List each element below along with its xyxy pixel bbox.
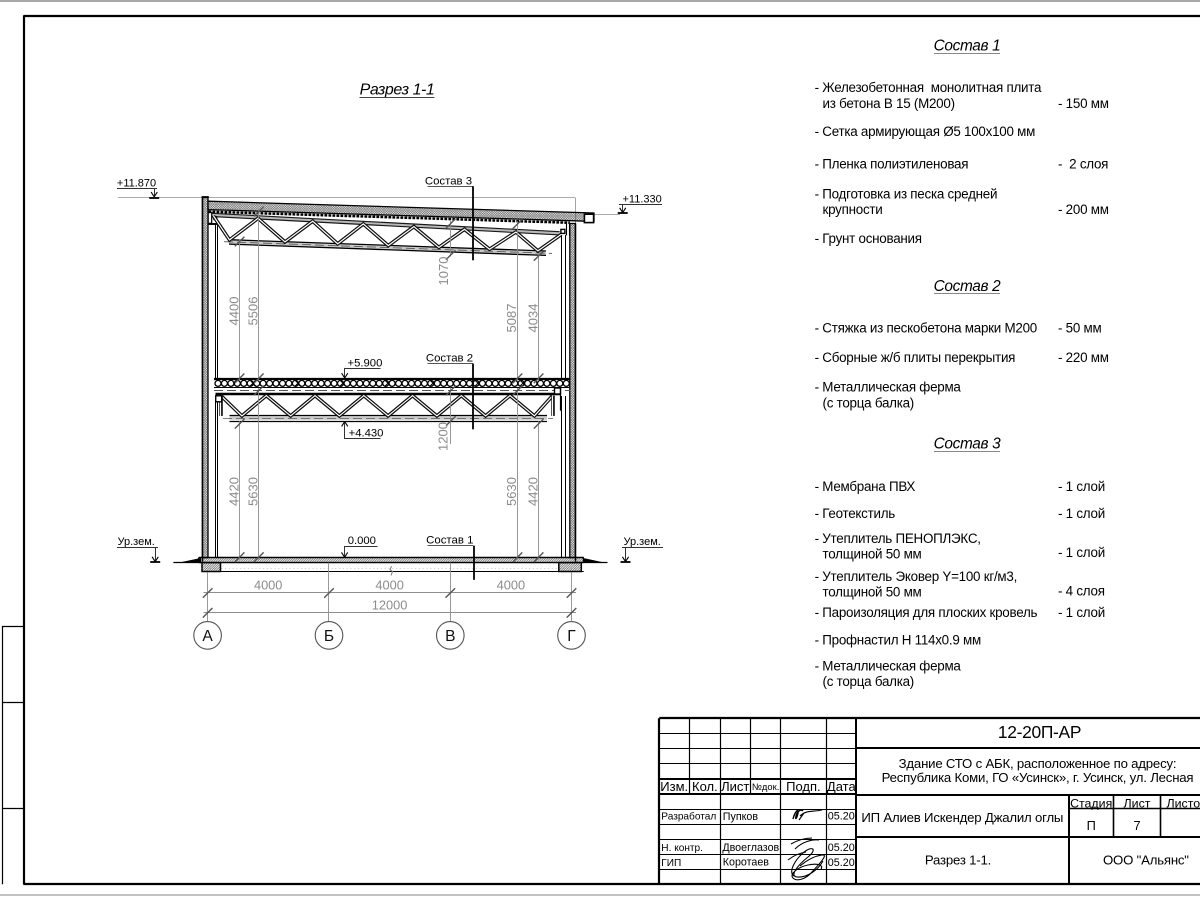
svg-text:- Мембрана ПВХ: - Мембрана ПВХ: [815, 479, 916, 494]
svg-text:Лист: Лист: [1124, 797, 1151, 811]
svg-text:- 1 слой: - 1 слой: [1058, 545, 1105, 560]
svg-text:Состав 2: Состав 2: [934, 278, 1001, 295]
svg-text:Стадия: Стадия: [1070, 797, 1112, 811]
svg-text:Подп.: Подп.: [786, 779, 821, 794]
svg-text:Республика Коми, ГО «Усинск»,: Республика Коми, ГО «Усинск», г. Усинск,…: [882, 770, 1194, 785]
svg-text:5087: 5087: [504, 304, 519, 333]
svg-text:из бетона В 15 (М200): из бетона В 15 (М200): [823, 96, 955, 111]
svg-text:1200: 1200: [436, 422, 451, 451]
svg-text:(с торца балка): (с торца балка): [823, 395, 915, 410]
svg-text:- Подготовка из песка средней: - Подготовка из песка средней: [815, 187, 998, 202]
svg-text:0.000: 0.000: [348, 535, 376, 547]
svg-text:крупности: крупности: [823, 202, 883, 217]
svg-text:- Пароизоляция для плоских кро: - Пароизоляция для плоских кровель: [815, 605, 1038, 620]
svg-text:- 1 слой: - 1 слой: [1058, 506, 1105, 521]
svg-text:Разработал: Разработал: [661, 810, 716, 822]
svg-text:5630: 5630: [504, 477, 519, 506]
svg-text:- Металлическая ферма: - Металлическая ферма: [815, 380, 962, 395]
svg-text:- Металлическая ферма: - Металлическая ферма: [815, 658, 962, 673]
svg-text:05.20: 05.20: [828, 842, 855, 854]
svg-text:5506: 5506: [246, 297, 261, 326]
svg-text:- 200 мм: - 200 мм: [1058, 202, 1109, 217]
svg-text:- 150 мм: - 150 мм: [1058, 96, 1109, 111]
svg-text:- 220 мм: - 220 мм: [1058, 350, 1109, 365]
svg-text:+5.900: +5.900: [348, 357, 383, 369]
svg-text:Разрез 1-1.: Разрез 1-1.: [925, 852, 991, 867]
svg-text:Г: Г: [567, 628, 576, 645]
svg-text:12-20П-АР: 12-20П-АР: [998, 722, 1081, 742]
svg-text:Коротаев: Коротаев: [723, 857, 769, 869]
svg-text:Изм.: Изм.: [660, 779, 688, 794]
svg-text:- Сборные ж/б плиты перекрытия: - Сборные ж/б плиты перекрытия: [815, 350, 1016, 365]
svg-text:толщиной 50 мм: толщиной 50 мм: [823, 585, 922, 600]
svg-text:+4.430: +4.430: [349, 428, 384, 440]
svg-text:7: 7: [1133, 818, 1140, 833]
svg-text:Состав 2: Состав 2: [426, 353, 473, 365]
svg-text:Двоеглазов: Двоеглазов: [722, 842, 779, 854]
svg-text:Листов: Листов: [1167, 797, 1200, 811]
svg-text:Ур.зем.: Ур.зем.: [624, 536, 661, 548]
svg-text:+11.330: +11.330: [623, 194, 662, 206]
svg-text:4400: 4400: [226, 297, 241, 326]
svg-text:- Пленка полиэтиленовая: - Пленка полиэтиленовая: [815, 157, 969, 172]
svg-text:4000: 4000: [375, 578, 403, 593]
svg-text:Состав 1: Состав 1: [426, 535, 473, 547]
svg-text:ИП Алиев Искендер Джалил оглы: ИП Алиев Искендер Джалил оглы: [861, 810, 1063, 825]
svg-text:Разрез 1-1: Разрез 1-1: [360, 82, 435, 99]
svg-text:+11.870: +11.870: [117, 178, 156, 190]
svg-text:А: А: [202, 628, 213, 645]
svg-text:1070: 1070: [436, 257, 451, 286]
svg-text:5630: 5630: [246, 477, 261, 506]
svg-text:- 4 слоя: - 4 слоя: [1058, 583, 1105, 598]
svg-text:4034: 4034: [525, 304, 540, 333]
svg-text:П: П: [1087, 818, 1096, 833]
svg-text:Лист: Лист: [721, 779, 749, 794]
svg-text:- Геотекстиль: - Геотекстиль: [815, 506, 896, 521]
svg-text:05.20: 05.20: [828, 811, 855, 823]
svg-text:Состав 3: Состав 3: [934, 436, 1001, 453]
svg-text:4000: 4000: [497, 578, 525, 593]
svg-text:Состав 3: Состав 3: [425, 175, 472, 187]
svg-text:Н. контр.: Н. контр.: [661, 843, 703, 854]
svg-text:Пупков: Пупков: [723, 811, 759, 823]
svg-text:4000: 4000: [254, 578, 282, 593]
svg-text:- 50 мм: - 50 мм: [1058, 320, 1102, 335]
svg-text:- 1 слой: - 1 слой: [1058, 479, 1105, 494]
svg-text:толщиной 50 мм: толщиной 50 мм: [823, 546, 922, 561]
svg-text:(с торца балка): (с торца балка): [823, 674, 915, 689]
svg-text:- 1 слой: - 1 слой: [1058, 605, 1105, 620]
svg-text:- Грунт основания: - Грунт основания: [815, 231, 922, 246]
svg-text:- Утеплитель ПЕНОПЛЭКС,: - Утеплитель ПЕНОПЛЭКС,: [815, 531, 981, 546]
svg-text:ООО "Альянс": ООО "Альянс": [1103, 852, 1189, 867]
svg-text:ГИП: ГИП: [661, 858, 681, 869]
svg-text:Кол.: Кол.: [692, 779, 718, 794]
svg-text:№док.: №док.: [752, 781, 779, 792]
svg-text:В: В: [445, 628, 455, 645]
svg-text:- Профнастил Н 114х0.9 мм: - Профнастил Н 114х0.9 мм: [815, 632, 981, 647]
svg-text:- Железобетонная монолитная п: - Железобетонная монолитная плита: [815, 80, 1042, 95]
svg-text:05.20: 05.20: [828, 857, 855, 869]
svg-text:4420: 4420: [525, 477, 540, 506]
svg-text:- Сетка армирующая Ø5 100х100: - Сетка армирующая Ø5 100х100 мм: [815, 124, 1035, 139]
svg-text:Ур.зем.: Ур.зем.: [118, 536, 155, 548]
svg-text:- Утеплитель Эковер Y=100 кг/м: - Утеплитель Эковер Y=100 кг/м3,: [815, 569, 1017, 584]
svg-text:12000: 12000: [372, 598, 408, 613]
svg-text:Б: Б: [324, 628, 334, 645]
svg-text:Состав 1: Состав 1: [934, 38, 1001, 55]
svg-text:- Стяжка из пескобетона марки: - Стяжка из пескобетона марки М200: [815, 320, 1037, 335]
svg-text:Дата: Дата: [827, 779, 857, 794]
svg-text:4420: 4420: [226, 477, 241, 506]
svg-text:- 2 слоя: - 2 слоя: [1058, 157, 1108, 172]
